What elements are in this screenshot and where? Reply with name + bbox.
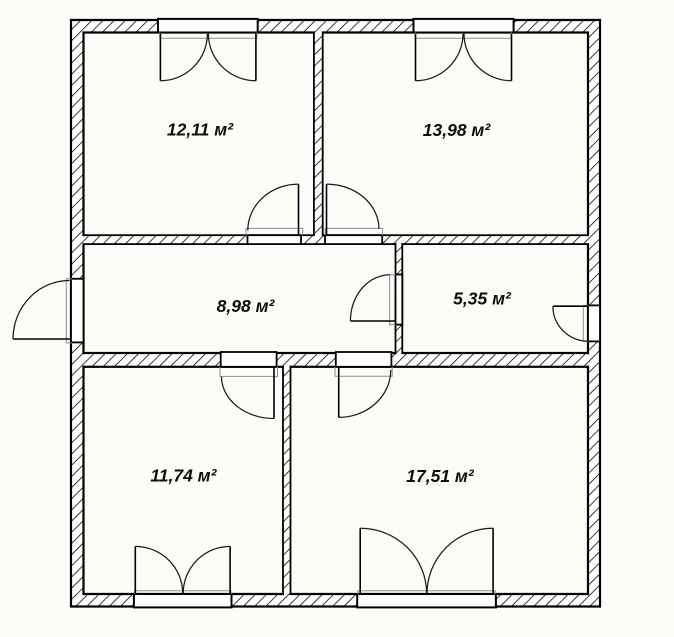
svg-text:8,98 м²: 8,98 м² [217,296,276,316]
svg-text:12,11 м²: 12,11 м² [167,120,234,140]
svg-text:11,74 м²: 11,74 м² [150,465,217,485]
svg-text:13,98 м²: 13,98 м² [423,120,492,140]
svg-text:17,51 м²: 17,51 м² [406,466,475,486]
svg-text:5,35 м²: 5,35 м² [453,289,512,309]
